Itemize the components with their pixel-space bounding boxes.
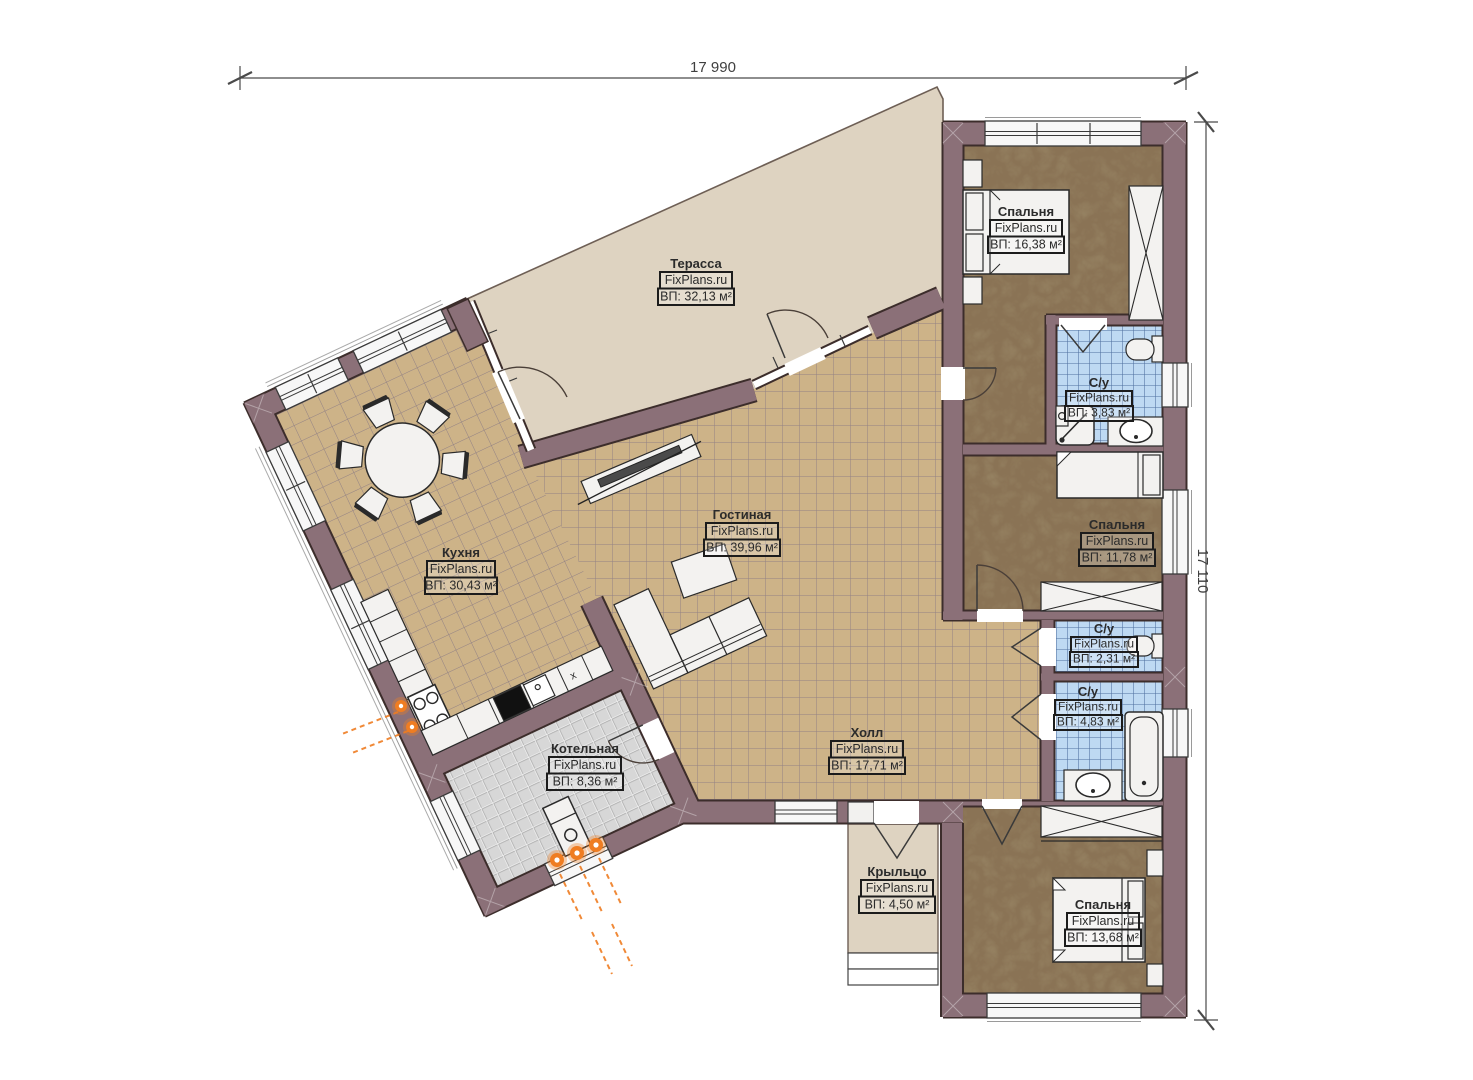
- svg-text:FixPlans.ru: FixPlans.ru: [1058, 700, 1118, 714]
- svg-text:ВП: 13,68 м²: ВП: 13,68 м²: [1067, 931, 1139, 945]
- svg-text:ВП: 8,36 м²: ВП: 8,36 м²: [553, 775, 618, 789]
- svg-text:С/у: С/у: [1094, 621, 1115, 636]
- svg-text:17 110: 17 110: [1194, 549, 1211, 594]
- svg-text:ВП: 39,96 м²: ВП: 39,96 м²: [706, 541, 778, 555]
- svg-text:FixPlans.ru: FixPlans.ru: [836, 742, 899, 756]
- svg-text:FixPlans.ru: FixPlans.ru: [866, 881, 929, 895]
- svg-text:FixPlans.ru: FixPlans.ru: [1072, 914, 1135, 928]
- svg-text:ВП: 2,31 м²: ВП: 2,31 м²: [1073, 652, 1135, 666]
- svg-text:17 990: 17 990: [690, 59, 736, 76]
- svg-text:Гостиная: Гостиная: [713, 507, 772, 522]
- svg-text:FixPlans.ru: FixPlans.ru: [1074, 637, 1134, 651]
- svg-text:FixPlans.ru: FixPlans.ru: [995, 221, 1058, 235]
- svg-text:Терасса: Терасса: [670, 256, 722, 271]
- svg-text:FixPlans.ru: FixPlans.ru: [1069, 391, 1129, 405]
- svg-text:ВП: 4,50 м²: ВП: 4,50 м²: [865, 898, 930, 912]
- svg-text:ВП: 32,13 м²: ВП: 32,13 м²: [660, 290, 732, 304]
- svg-text:FixPlans.ru: FixPlans.ru: [430, 562, 493, 576]
- svg-text:С/у: С/у: [1089, 375, 1110, 390]
- svg-text:Спальня: Спальня: [1089, 517, 1145, 532]
- svg-text:Спальня: Спальня: [1075, 897, 1131, 912]
- svg-text:ВП: 17,71 м²: ВП: 17,71 м²: [831, 759, 903, 773]
- svg-text:ВП: 16,38 м²: ВП: 16,38 м²: [990, 238, 1062, 252]
- svg-text:FixPlans.ru: FixPlans.ru: [1086, 534, 1149, 548]
- svg-text:Кухня: Кухня: [442, 545, 480, 560]
- svg-text:Котельная: Котельная: [551, 741, 619, 756]
- svg-text:FixPlans.ru: FixPlans.ru: [554, 758, 617, 772]
- svg-text:ВП: 4,83 м²: ВП: 4,83 м²: [1057, 715, 1119, 729]
- svg-text:Холл: Холл: [851, 725, 884, 740]
- svg-text:С/у: С/у: [1078, 684, 1099, 699]
- svg-text:ВП: 11,78 м²: ВП: 11,78 м²: [1082, 551, 1153, 565]
- svg-text:FixPlans.ru: FixPlans.ru: [711, 524, 774, 538]
- svg-text:Спальня: Спальня: [998, 204, 1054, 219]
- svg-text:FixPlans.ru: FixPlans.ru: [665, 273, 728, 287]
- svg-text:Крыльцо: Крыльцо: [867, 864, 926, 879]
- svg-text:ВП: 3,83 м²: ВП: 3,83 м²: [1068, 406, 1130, 420]
- svg-text:ВП: 30,43 м²: ВП: 30,43 м²: [425, 579, 497, 593]
